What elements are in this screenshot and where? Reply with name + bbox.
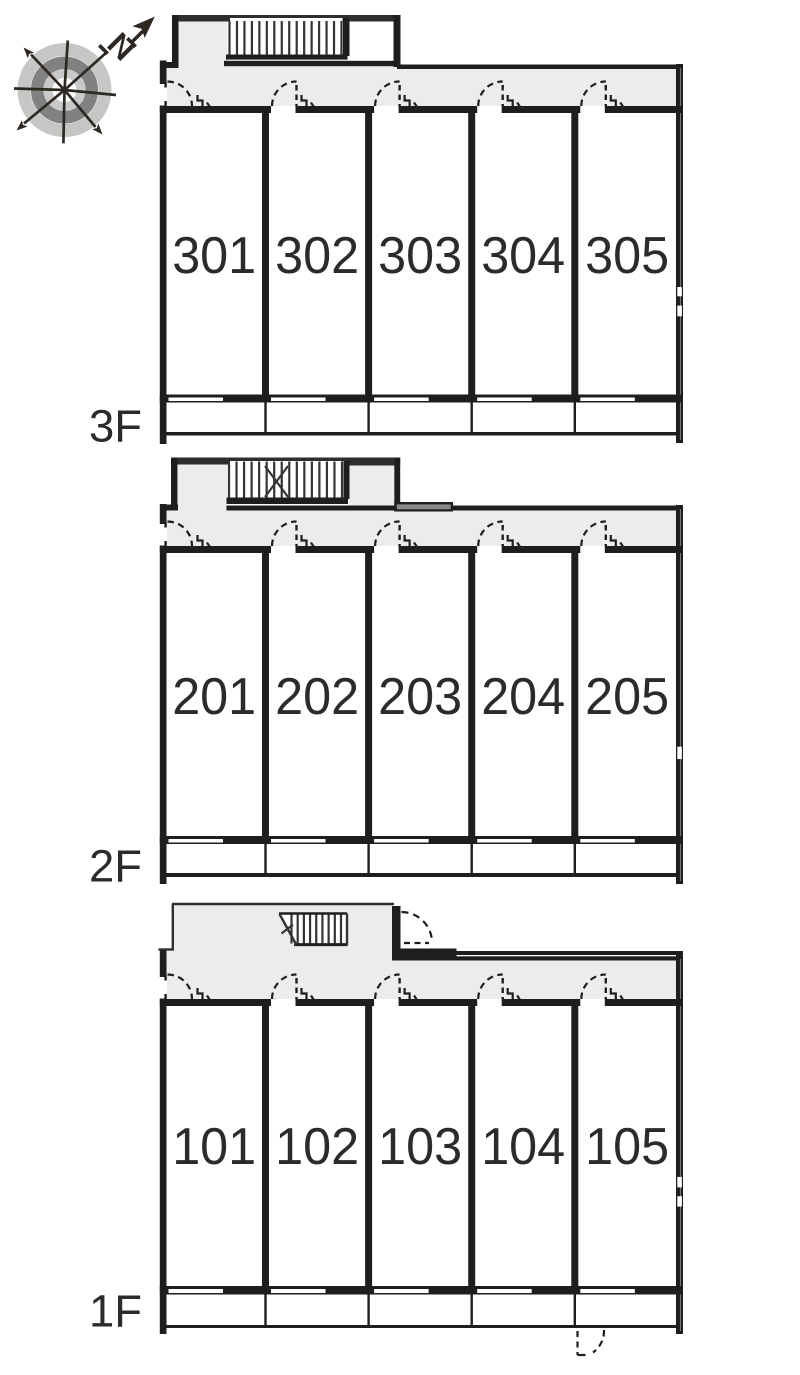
svg-text:101: 101 xyxy=(172,1118,256,1176)
svg-text:105: 105 xyxy=(585,1118,669,1176)
svg-text:301: 301 xyxy=(172,227,256,285)
svg-text:303: 303 xyxy=(378,227,462,285)
svg-text:1F: 1F xyxy=(89,1286,142,1337)
svg-text:304: 304 xyxy=(481,227,565,285)
svg-text:204: 204 xyxy=(481,668,565,726)
svg-text:205: 205 xyxy=(585,668,669,726)
svg-text:305: 305 xyxy=(585,227,669,285)
svg-text:103: 103 xyxy=(378,1118,462,1176)
svg-text:203: 203 xyxy=(378,668,462,726)
svg-text:3F: 3F xyxy=(89,401,142,452)
svg-text:2F: 2F xyxy=(89,841,142,892)
svg-text:202: 202 xyxy=(275,668,359,726)
svg-text:201: 201 xyxy=(172,668,256,726)
svg-text:302: 302 xyxy=(275,227,359,285)
svg-text:104: 104 xyxy=(481,1118,565,1176)
svg-text:102: 102 xyxy=(275,1118,359,1176)
